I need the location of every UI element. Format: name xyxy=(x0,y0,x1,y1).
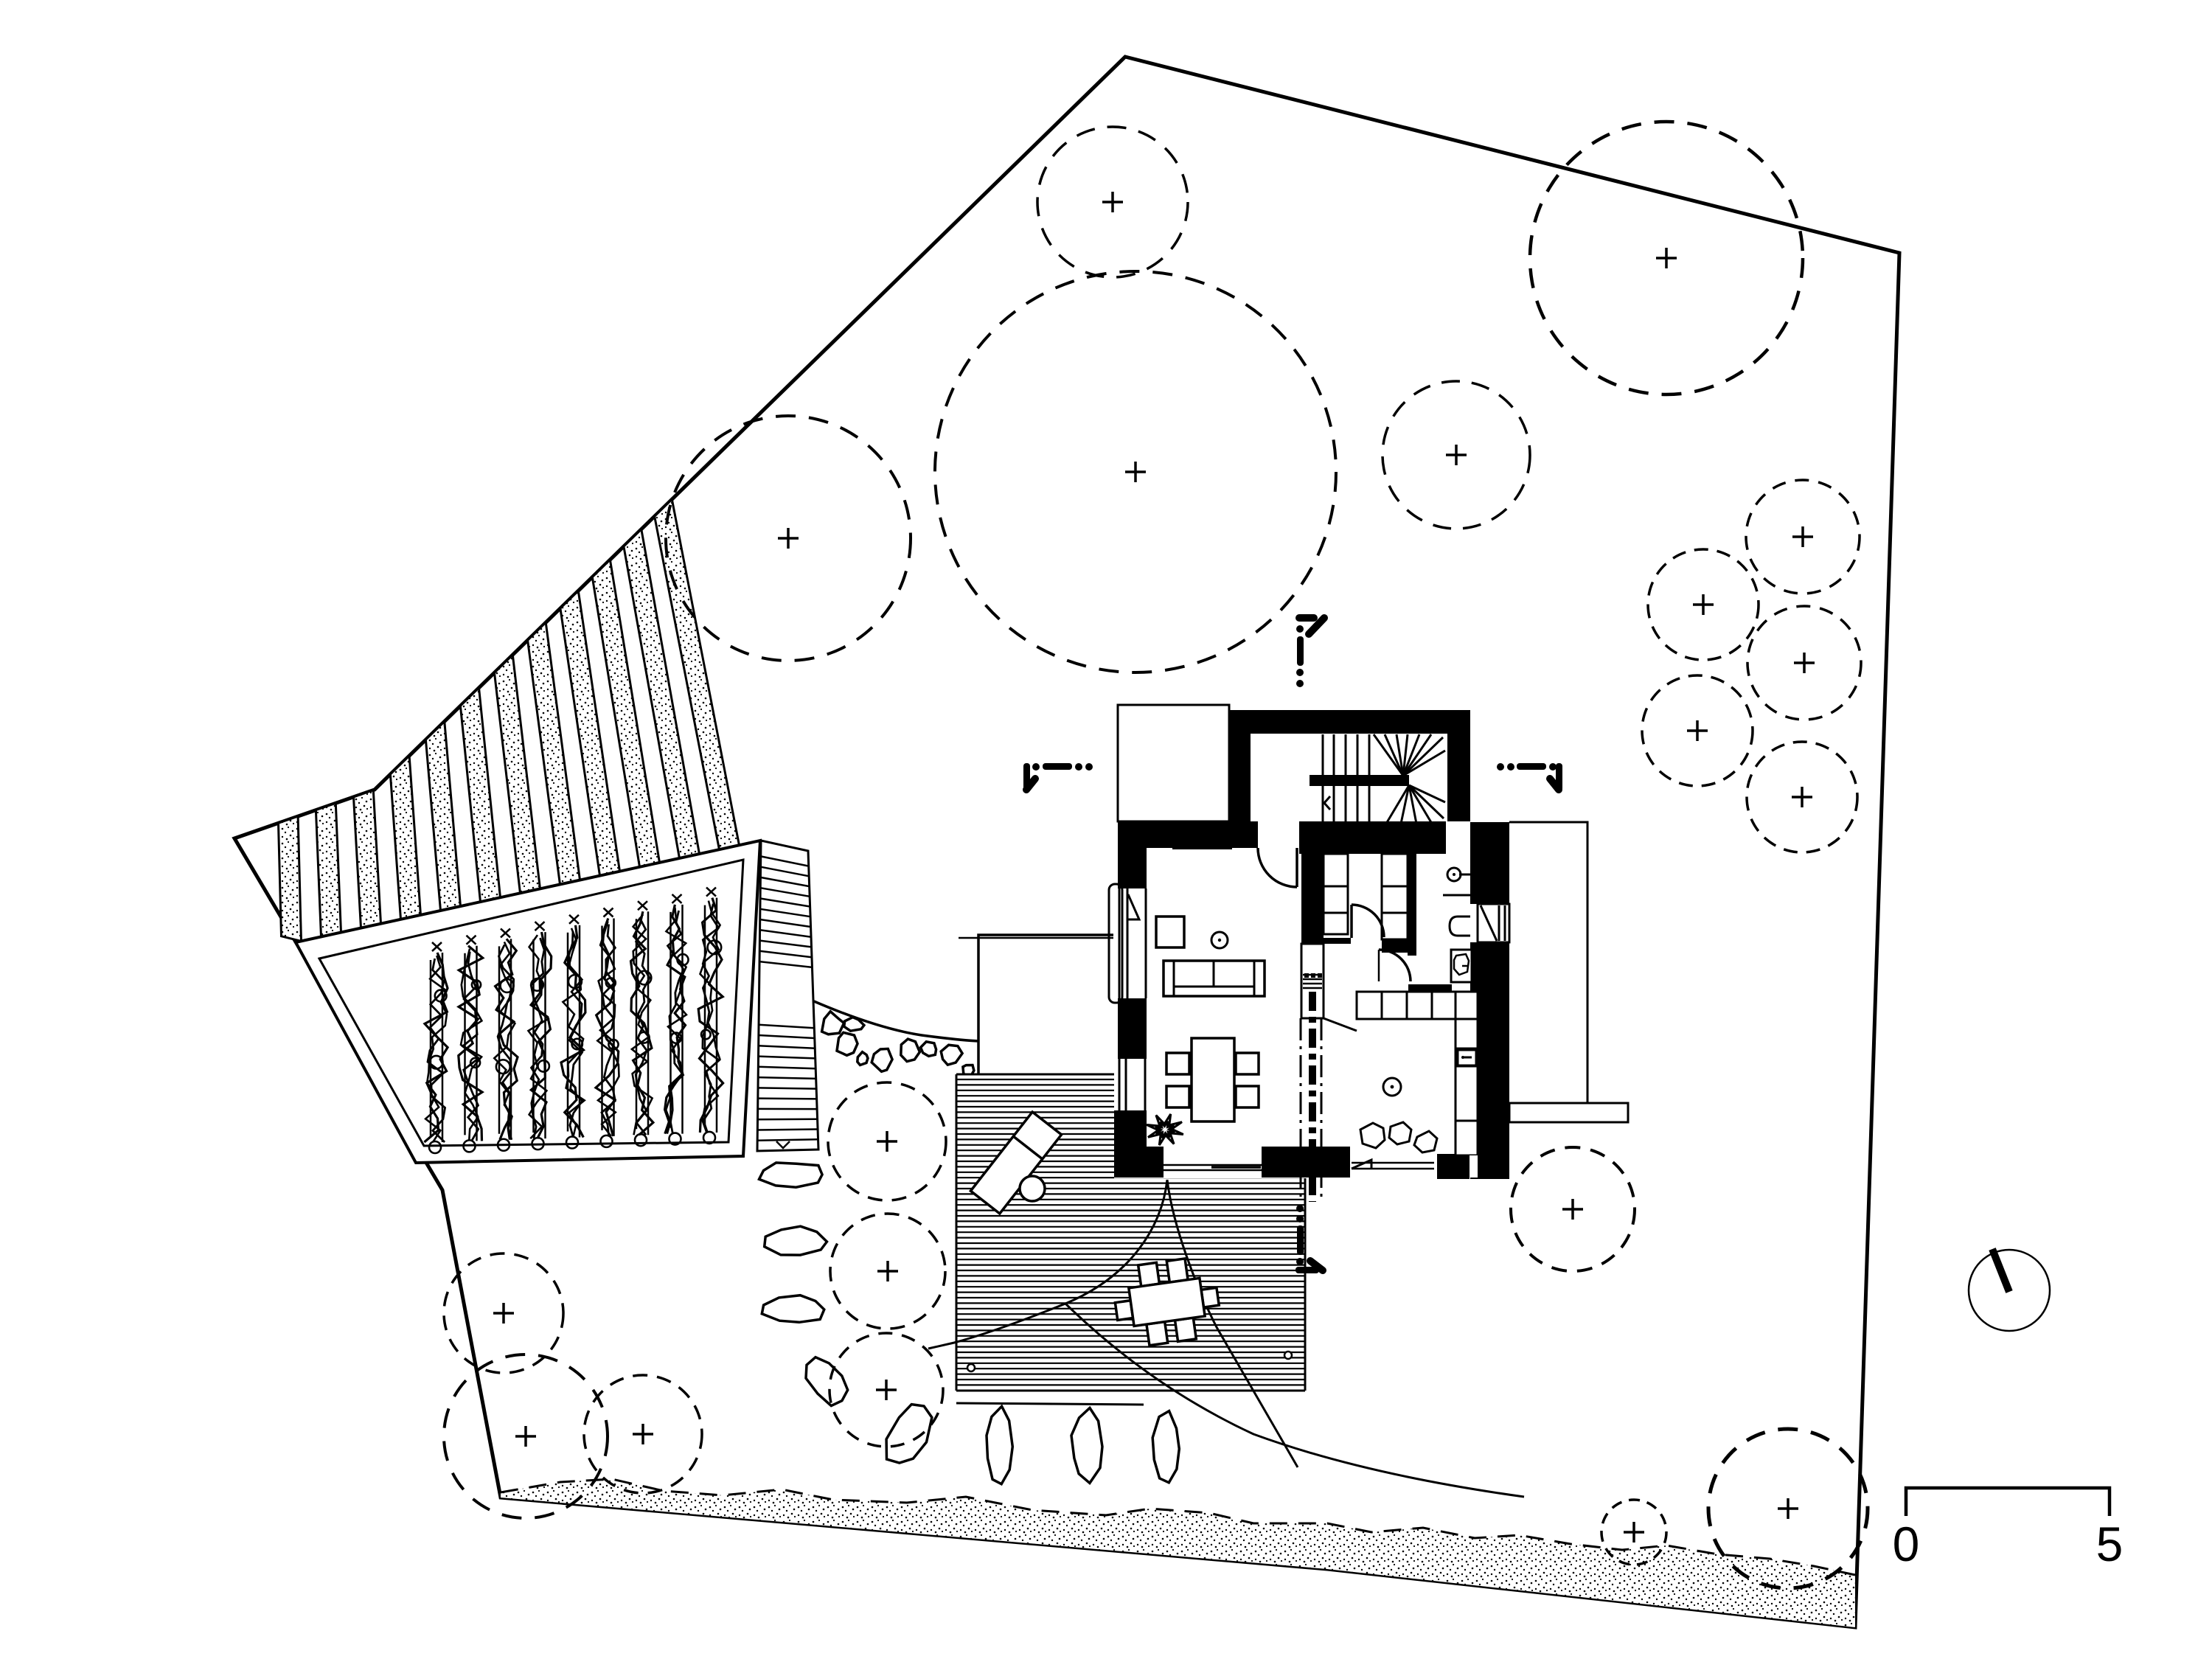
svg-text:0: 0 xyxy=(1893,1517,1920,1571)
svg-text:5: 5 xyxy=(2096,1517,2124,1571)
